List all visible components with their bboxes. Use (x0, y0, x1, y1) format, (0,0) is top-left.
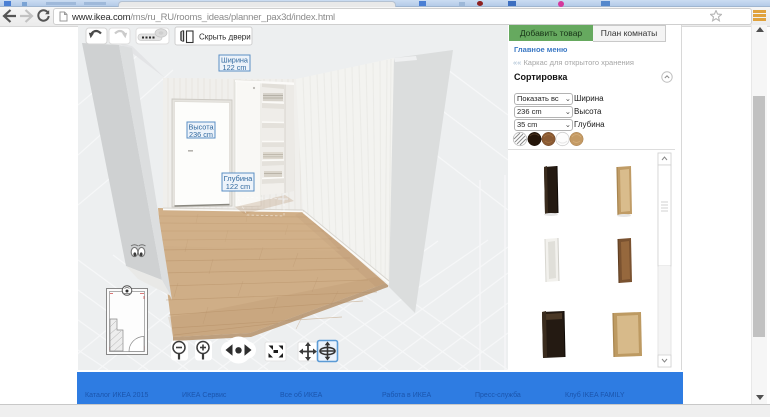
svg-text:236 cm: 236 cm (189, 130, 213, 139)
svg-text:122 cm: 122 cm (223, 63, 247, 72)
svg-text:Скрыть двери: Скрыть двери (199, 33, 251, 42)
svg-text:122 cm: 122 cm (226, 182, 251, 191)
